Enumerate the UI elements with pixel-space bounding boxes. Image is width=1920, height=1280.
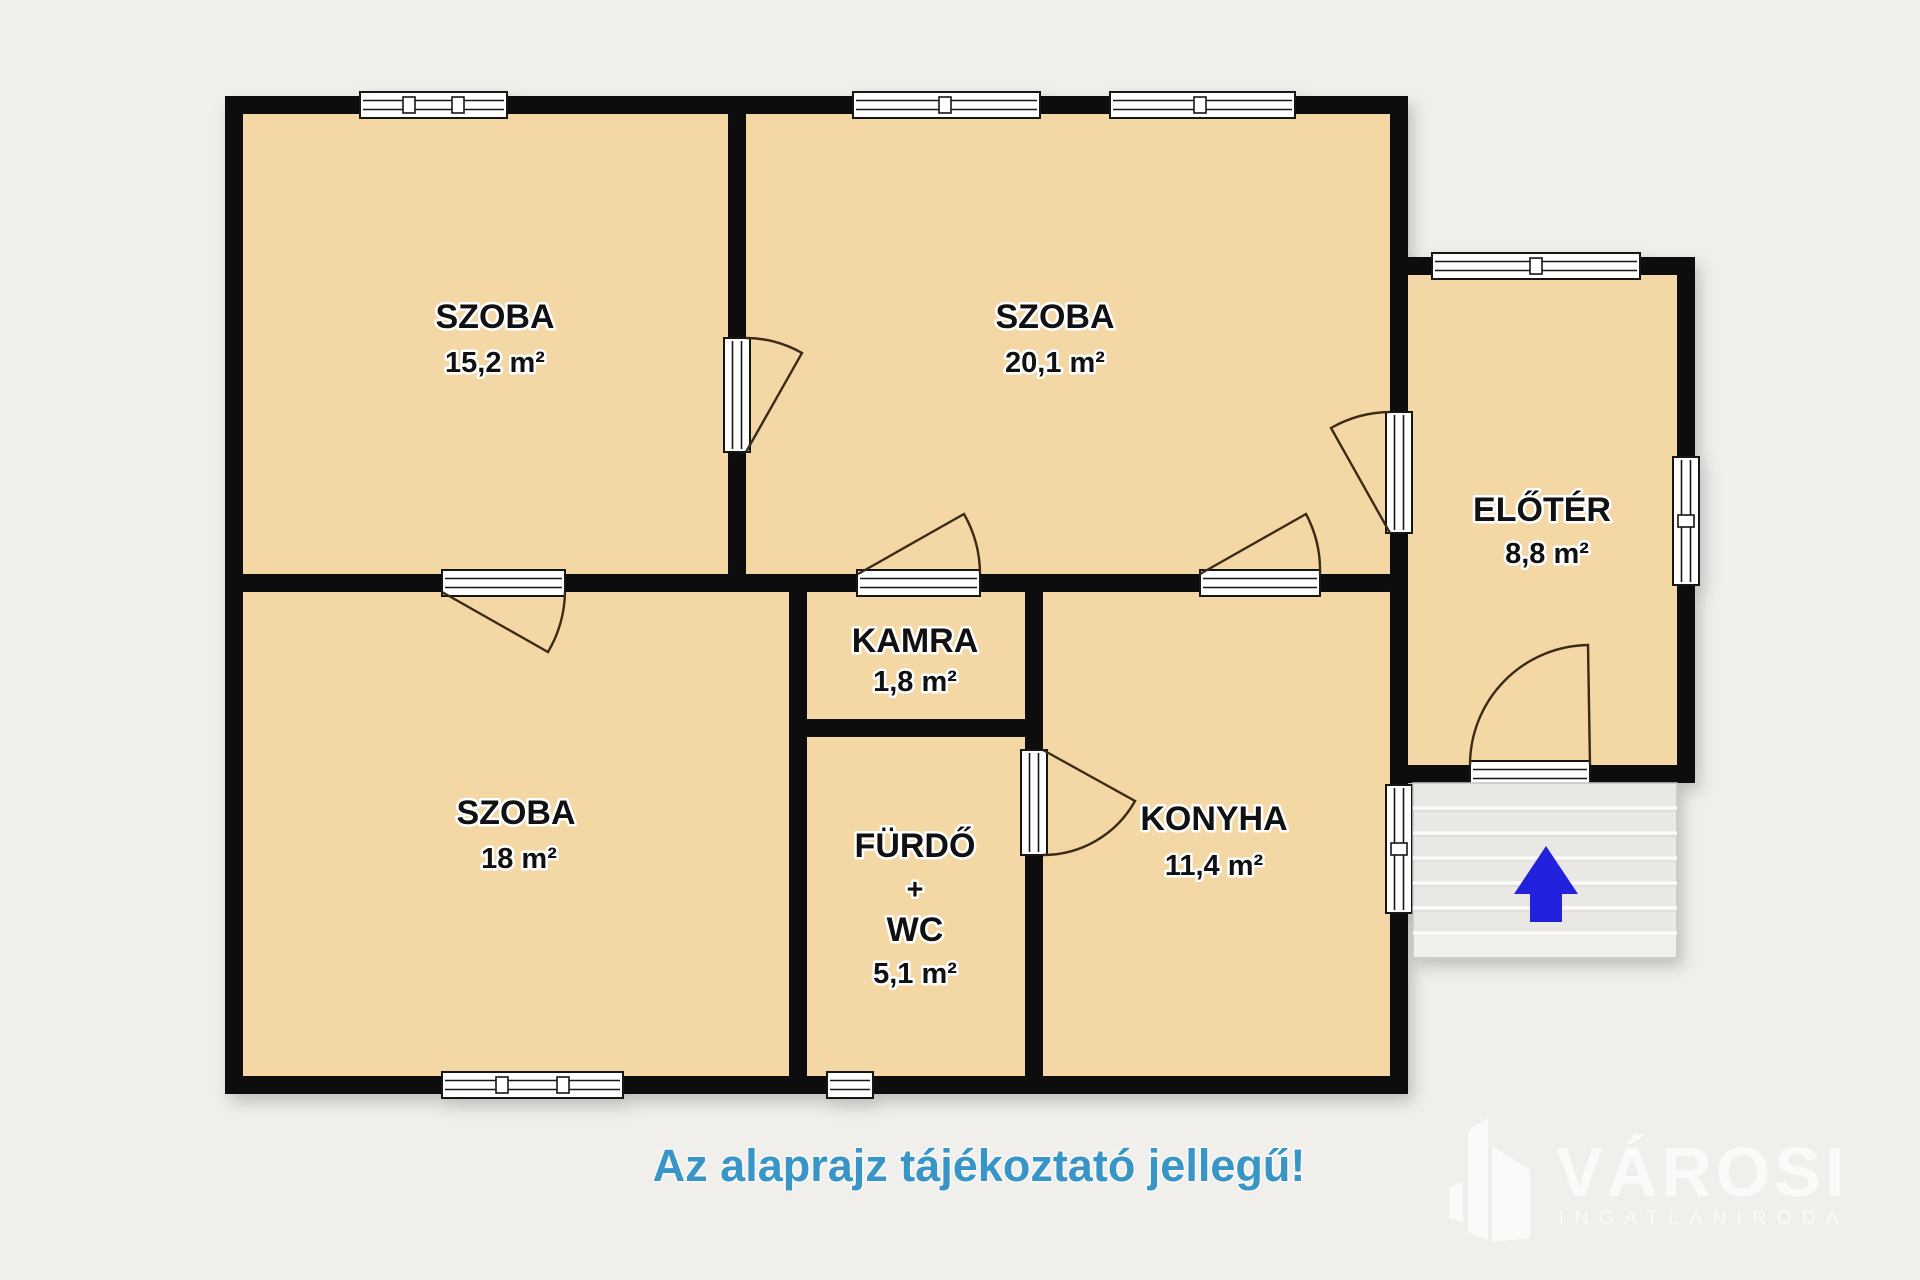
room-plus: + (907, 874, 924, 906)
window-szoba2-top-right (1110, 92, 1295, 118)
room-name: KONYHA (1140, 800, 1287, 838)
room-name: FÜRDŐ (855, 827, 976, 865)
window-szoba3-bottom (442, 1072, 623, 1098)
brand-subtitle: INGATLANIRODA (1559, 1208, 1849, 1229)
window-szoba1-top (360, 92, 507, 118)
room-area: 8,8 m² (1505, 538, 1589, 570)
window-eloter-top (1432, 253, 1640, 279)
brand-watermark: VÁROSI INGATLANIRODA (1449, 1118, 1849, 1242)
room-area: 15,2 m² (445, 347, 545, 379)
room-name: SZOBA (457, 794, 576, 832)
floorplan-canvas: SZOBA 15,2 m² SZOBA 20,1 m² ELŐTÉR 8,8 m… (0, 0, 1920, 1280)
disclaimer-text: Az alaprajz tájékoztató jellegű! (653, 1140, 1306, 1191)
room-name-wc: WC (887, 911, 944, 949)
room-area: 11,4 m² (1165, 850, 1264, 882)
window-szoba2-top-left (853, 92, 1040, 118)
room-area: 20,1 m² (1005, 347, 1105, 379)
floorplan: SZOBA 15,2 m² SZOBA 20,1 m² ELŐTÉR 8,8 m… (0, 0, 1920, 1280)
brand-name: VÁROSI (1556, 1133, 1848, 1211)
room-name: SZOBA (436, 298, 555, 336)
room-name: ELŐTÉR (1473, 491, 1611, 529)
room-name: SZOBA (996, 298, 1115, 336)
brand-logo-icon (1449, 1118, 1530, 1242)
room-area: 5,1 m² (873, 958, 957, 990)
window-konyha-right (1386, 785, 1412, 913)
room-area: 18 m² (481, 843, 557, 875)
room-area: 1,8 m² (873, 666, 957, 698)
stairs (1413, 783, 1677, 958)
window-furdo-bottom (827, 1072, 873, 1098)
room-name: KAMRA (852, 622, 979, 660)
building (225, 92, 1699, 1098)
window-eloter-right (1673, 457, 1699, 585)
